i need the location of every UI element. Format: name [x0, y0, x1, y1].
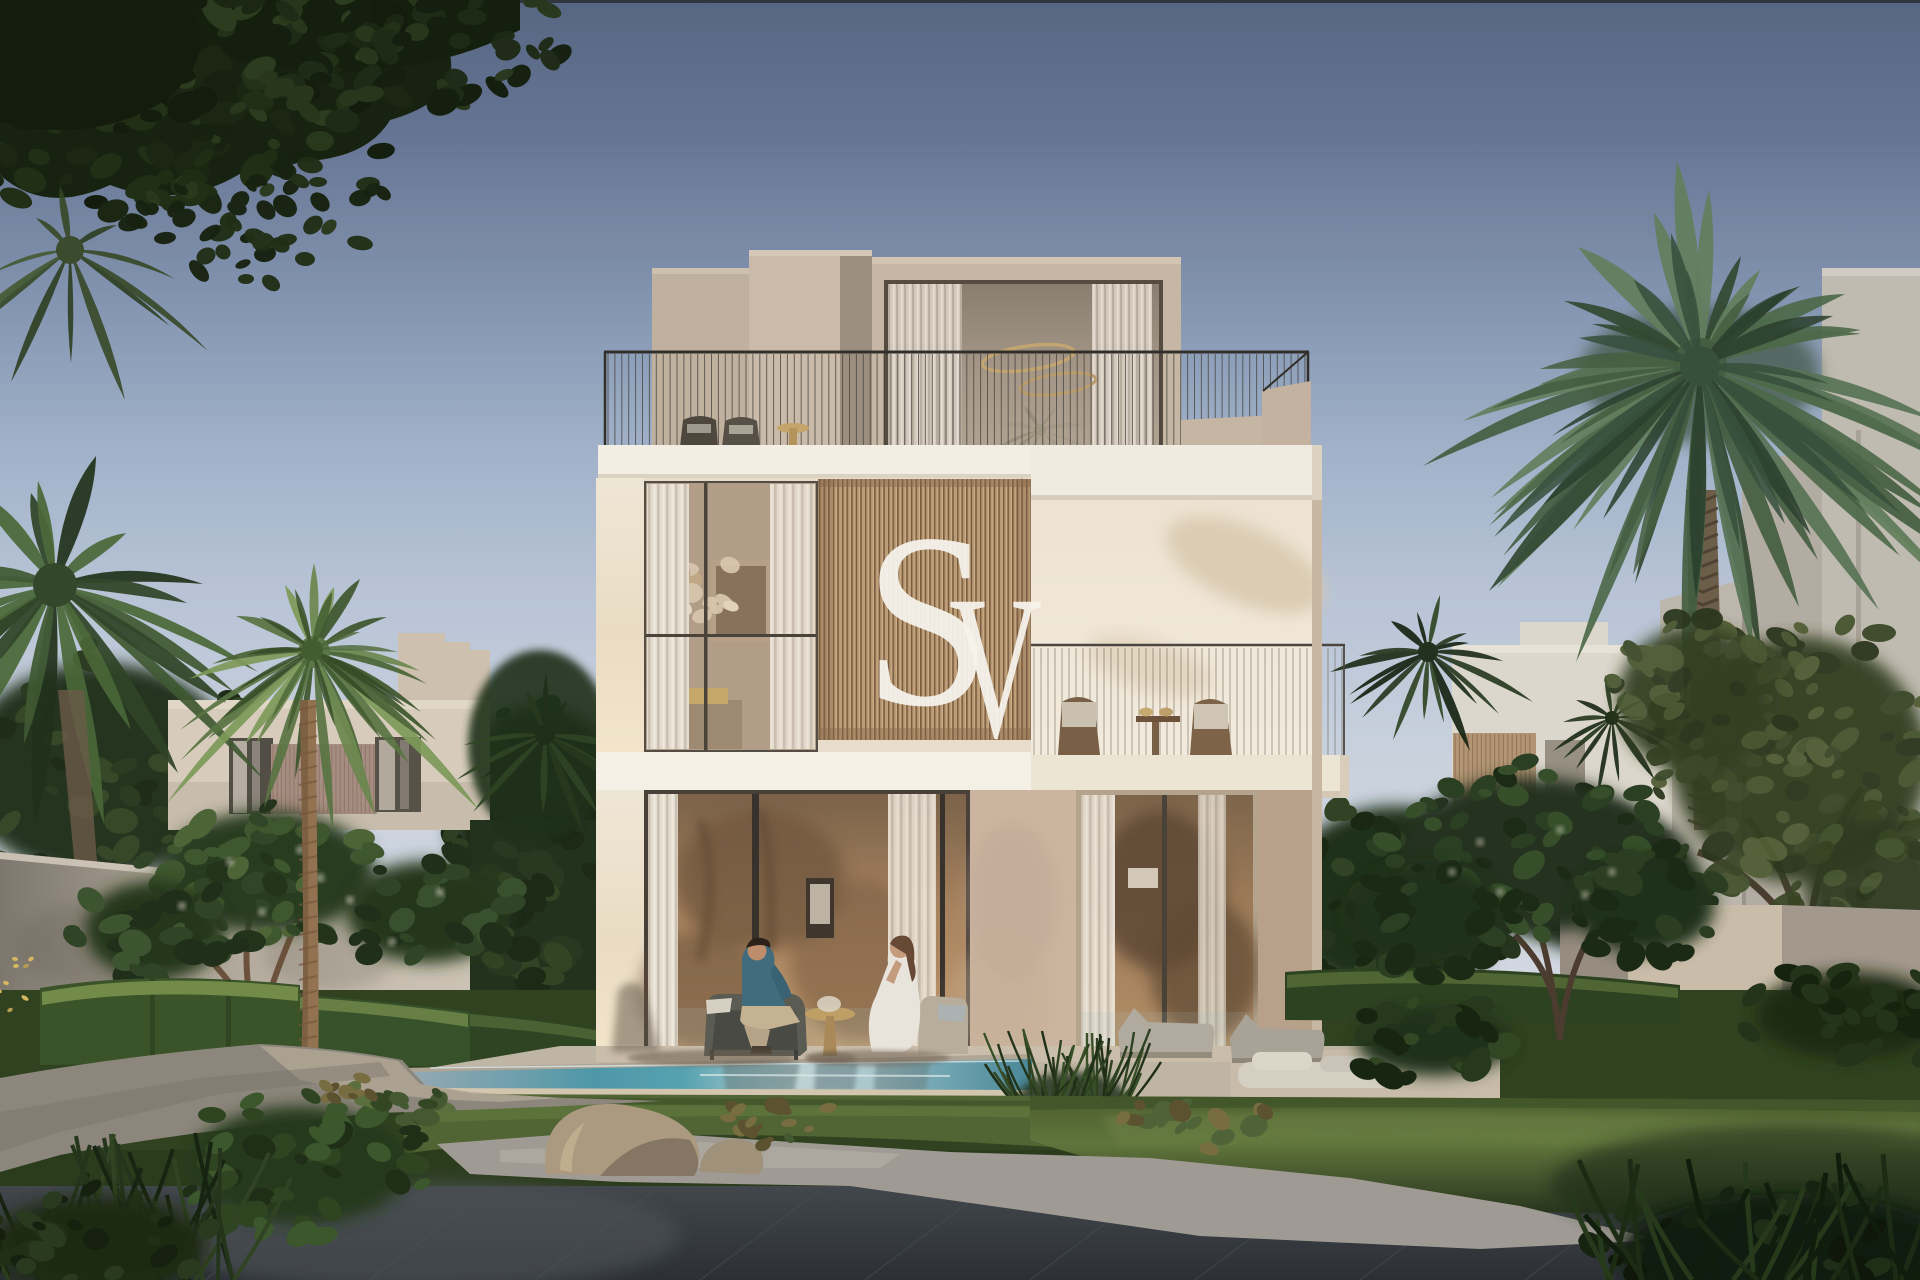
svg-text:V: V — [949, 554, 1042, 781]
